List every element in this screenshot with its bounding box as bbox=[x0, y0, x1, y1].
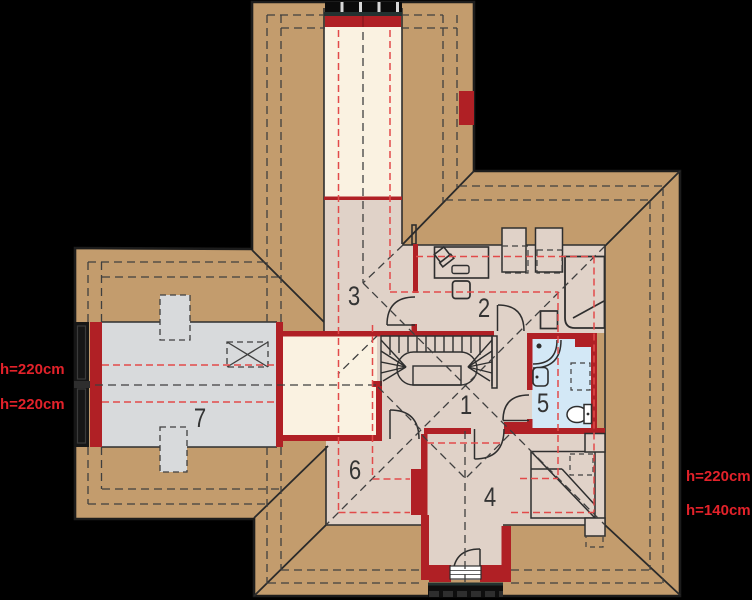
svg-text:5: 5 bbox=[537, 389, 549, 419]
svg-text:4: 4 bbox=[484, 483, 496, 513]
svg-text:h=220cm: h=220cm bbox=[686, 468, 751, 485]
svg-text:1: 1 bbox=[460, 391, 472, 421]
svg-text:6: 6 bbox=[349, 456, 361, 486]
svg-text:h=220cm: h=220cm bbox=[0, 396, 65, 413]
svg-text:h=140cm: h=140cm bbox=[686, 502, 751, 519]
svg-text:3: 3 bbox=[348, 282, 360, 312]
svg-text:h=220cm: h=220cm bbox=[0, 361, 65, 378]
svg-text:2: 2 bbox=[478, 294, 490, 324]
svg-text:7: 7 bbox=[194, 404, 206, 434]
